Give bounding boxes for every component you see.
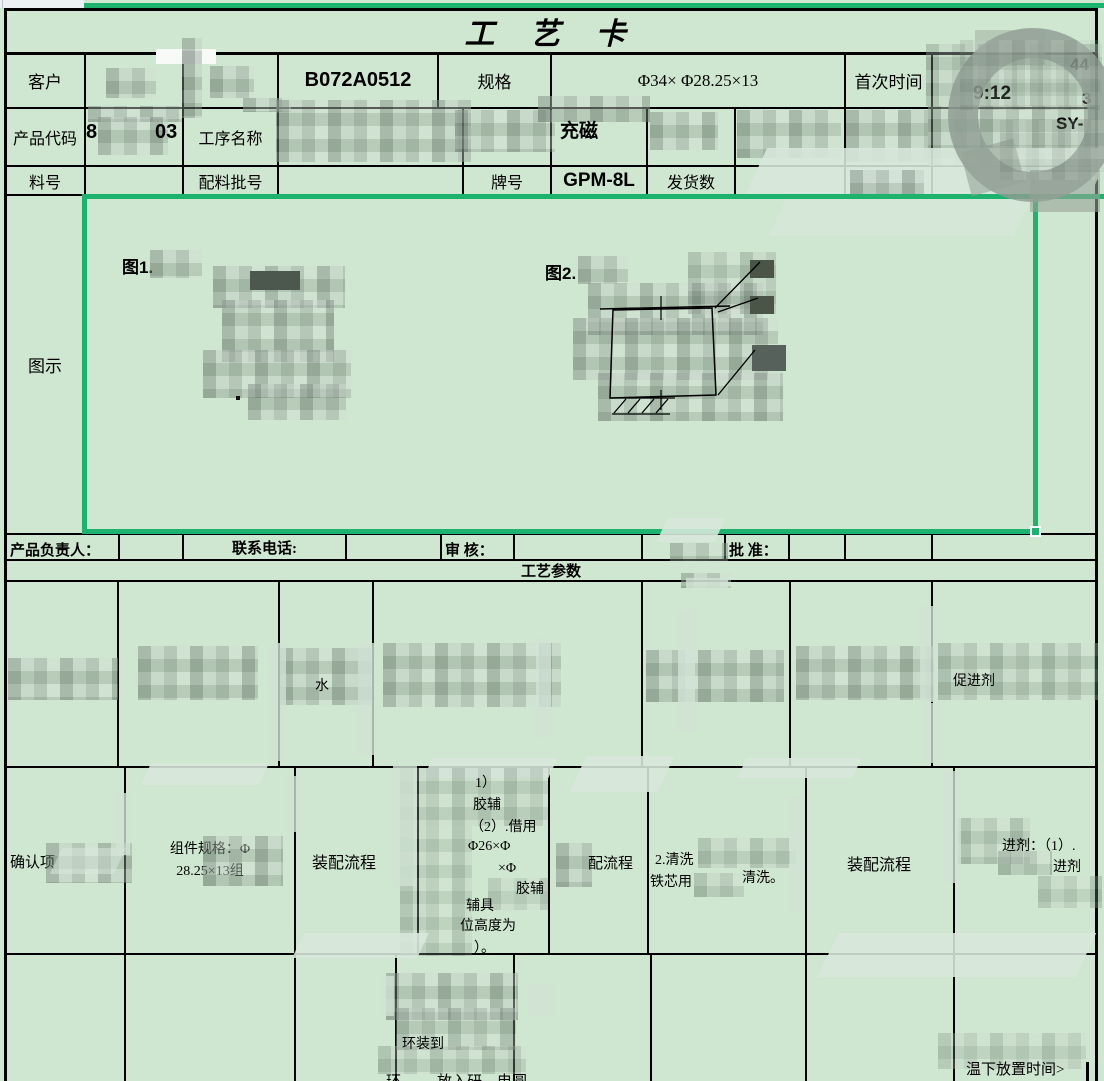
redaction-streak [686,578,728,588]
redaction-mosaic [556,843,592,887]
cell-phone-label[interactable]: 联系电话: [184,535,345,559]
product-code-fragment-left: 8 [86,121,97,144]
process-fragment: 充磁 [560,116,598,143]
gridline [641,581,643,766]
redaction-streak [393,766,417,886]
selection-border-left [82,194,87,534]
redaction-mosaic [182,38,202,118]
detail-line: 1） [475,772,496,792]
redaction-wedge [656,518,725,542]
redaction-streak [116,793,130,855]
gridline [844,535,846,559]
gridline [1086,1062,1089,1081]
cell-diagram-label[interactable]: 图示 [6,196,84,533]
cell-approve-label[interactable]: 批 准： [729,539,778,560]
fig1-label: 图1. [122,253,153,278]
selection-border-right [1033,199,1038,534]
redaction-wedge [737,758,861,778]
gridline [124,955,126,1081]
rowC-fragment-bottom-3: 电圆 [497,1070,527,1081]
redaction-wedge [141,763,269,785]
redaction-mosaic [1000,120,1104,180]
redaction-streak [358,643,375,755]
cell-product-code-label[interactable]: 产品代码 [6,109,84,165]
cell-batch-label[interactable]: 配料批号 [184,167,277,194]
detail-line: ×Φ [498,861,516,877]
gridline [548,768,550,953]
selection-fill-handle[interactable] [1030,526,1041,537]
redaction-mosaic [150,250,202,278]
redaction-streak [381,976,394,1016]
redaction-mosaic [1038,876,1102,908]
cell-customer-label[interactable]: 客户 [6,54,84,107]
redaction-mosaic [670,543,728,561]
detail-line: 胶辅 [516,878,544,898]
redaction-streak [536,638,551,738]
redaction-wedge [50,848,126,874]
time-note-fragment[interactable]: 温下放置时间> [966,1058,1064,1079]
top-strip [0,0,84,8]
redaction-mosaic [646,650,784,702]
detail-line: 位高度为 [460,915,516,935]
redaction-streak [678,610,695,732]
redaction-mosaic [960,40,1100,110]
gridline [84,52,86,107]
fig1-blur [248,384,346,420]
clean-line2: 铁芯用 [650,871,692,891]
redaction-mosaic [998,851,1052,875]
spreadsheet-canvas: 工 艺 卡 客户 B072A0512 规格 Φ34× Φ28.25×13 首次时… [0,0,1104,1081]
cell-review-label[interactable]: 审 核： [445,539,494,560]
redaction-mosaic [276,100,471,162]
redaction-streak [270,643,286,761]
gridline [805,768,807,953]
gridline [440,535,442,559]
redaction-mosaic [8,658,118,700]
redaction-mosaic [138,646,258,700]
rowA-fragment-c7: 促进剂 [953,670,995,690]
clean-line3: 清洗。 [742,867,784,887]
gridline [513,535,515,559]
redaction-wedge [570,756,675,792]
detail-line: （2）.借用 [470,816,537,836]
rowA-fragment-c3: 水 [315,675,329,695]
detail-line: ）。 [474,937,495,957]
cell-flow-fragment[interactable]: 配流程 [588,852,633,873]
cell-assembly-flow-1[interactable]: 装配流程 [312,849,376,873]
redaction-streak [790,796,805,912]
fig1-dark-bar [250,271,300,290]
cell-first-time-label[interactable]: 首次时间 [846,54,931,107]
gridline [294,955,296,1081]
cell-ship-label[interactable]: 发货数 [648,167,734,194]
redaction-streak [528,983,554,1015]
gridline [2,0,3,8]
gridline [789,581,791,766]
redaction-streak [944,771,961,883]
redaction-mosaic [650,112,718,150]
params-section-title: 工艺参数 [4,561,1098,580]
redaction-mosaic [850,170,924,196]
detail-line: 辅具 [466,895,494,915]
redaction-streak [924,703,942,763]
gridline [118,535,120,559]
cell-owner-label[interactable]: 产品负责人： [10,539,100,560]
detail-line: 胶辅 [473,794,501,814]
fig2-lineart [560,230,860,420]
rowC-fragment-bottom-1: 环 [386,1070,401,1081]
rowC-fragment-top[interactable]: 环装到 [402,1033,444,1053]
gridline [788,535,790,559]
cell-assembly-flow-2[interactable]: 装配流程 [847,851,911,875]
gridline [650,955,652,1081]
product-code-fragment-right: 03 [155,121,177,144]
redaction-streak [920,606,937,702]
cell-grade-label[interactable]: 牌号 [464,167,550,194]
rowC-fragment-bottom-2: 放入研 [437,1070,482,1081]
gridline [647,768,649,953]
redaction-streak [286,776,302,832]
redaction-mosaic [694,873,744,897]
gridline [805,955,807,1081]
selection-border-bottom [82,529,1038,534]
promoter-line2: 进剂 [1053,856,1081,876]
cell-material-label[interactable]: 料号 [6,167,84,194]
redaction-mosaic [383,643,561,707]
redaction-mosaic [203,836,283,886]
fig1-dot [236,396,240,400]
gridline [734,107,736,196]
redaction-mosaic [210,66,254,98]
redaction-mosaic [796,646,934,700]
redaction-mosaic [106,68,156,98]
detail-line: Φ26×Φ [468,839,510,855]
redaction-mosaic [698,838,796,868]
page-title: 工 艺 卡 [60,10,1044,52]
gridline [641,535,643,559]
redaction-wedge [818,933,1097,977]
cell-grade-value[interactable]: GPM-8L [552,167,646,194]
clean-line1[interactable]: 2.清洗 [655,849,694,869]
redaction-wedge [292,933,429,958]
gridline [345,535,347,559]
gridline [931,535,933,559]
